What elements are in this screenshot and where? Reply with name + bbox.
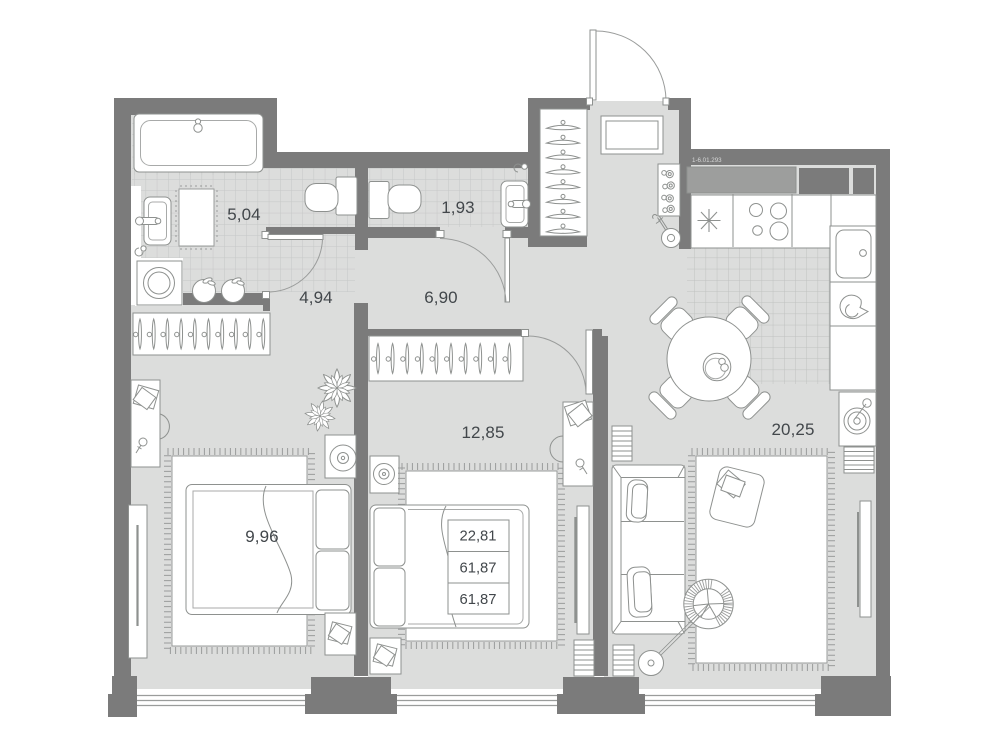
svg-text:1-6.01.293: 1-6.01.293 [692,157,722,164]
svg-text:9,96: 9,96 [245,527,279,546]
svg-text:20,25: 20,25 [771,420,814,439]
svg-text:22,81: 22,81 [459,529,496,545]
svg-text:61,87: 61,87 [459,592,496,608]
svg-text:6,90: 6,90 [424,288,458,307]
svg-text:1,93: 1,93 [441,198,475,217]
svg-text:61,87: 61,87 [459,561,496,577]
svg-text:12,85: 12,85 [461,423,504,442]
svg-text:5,04: 5,04 [227,205,261,224]
svg-text:4,94: 4,94 [299,288,333,307]
